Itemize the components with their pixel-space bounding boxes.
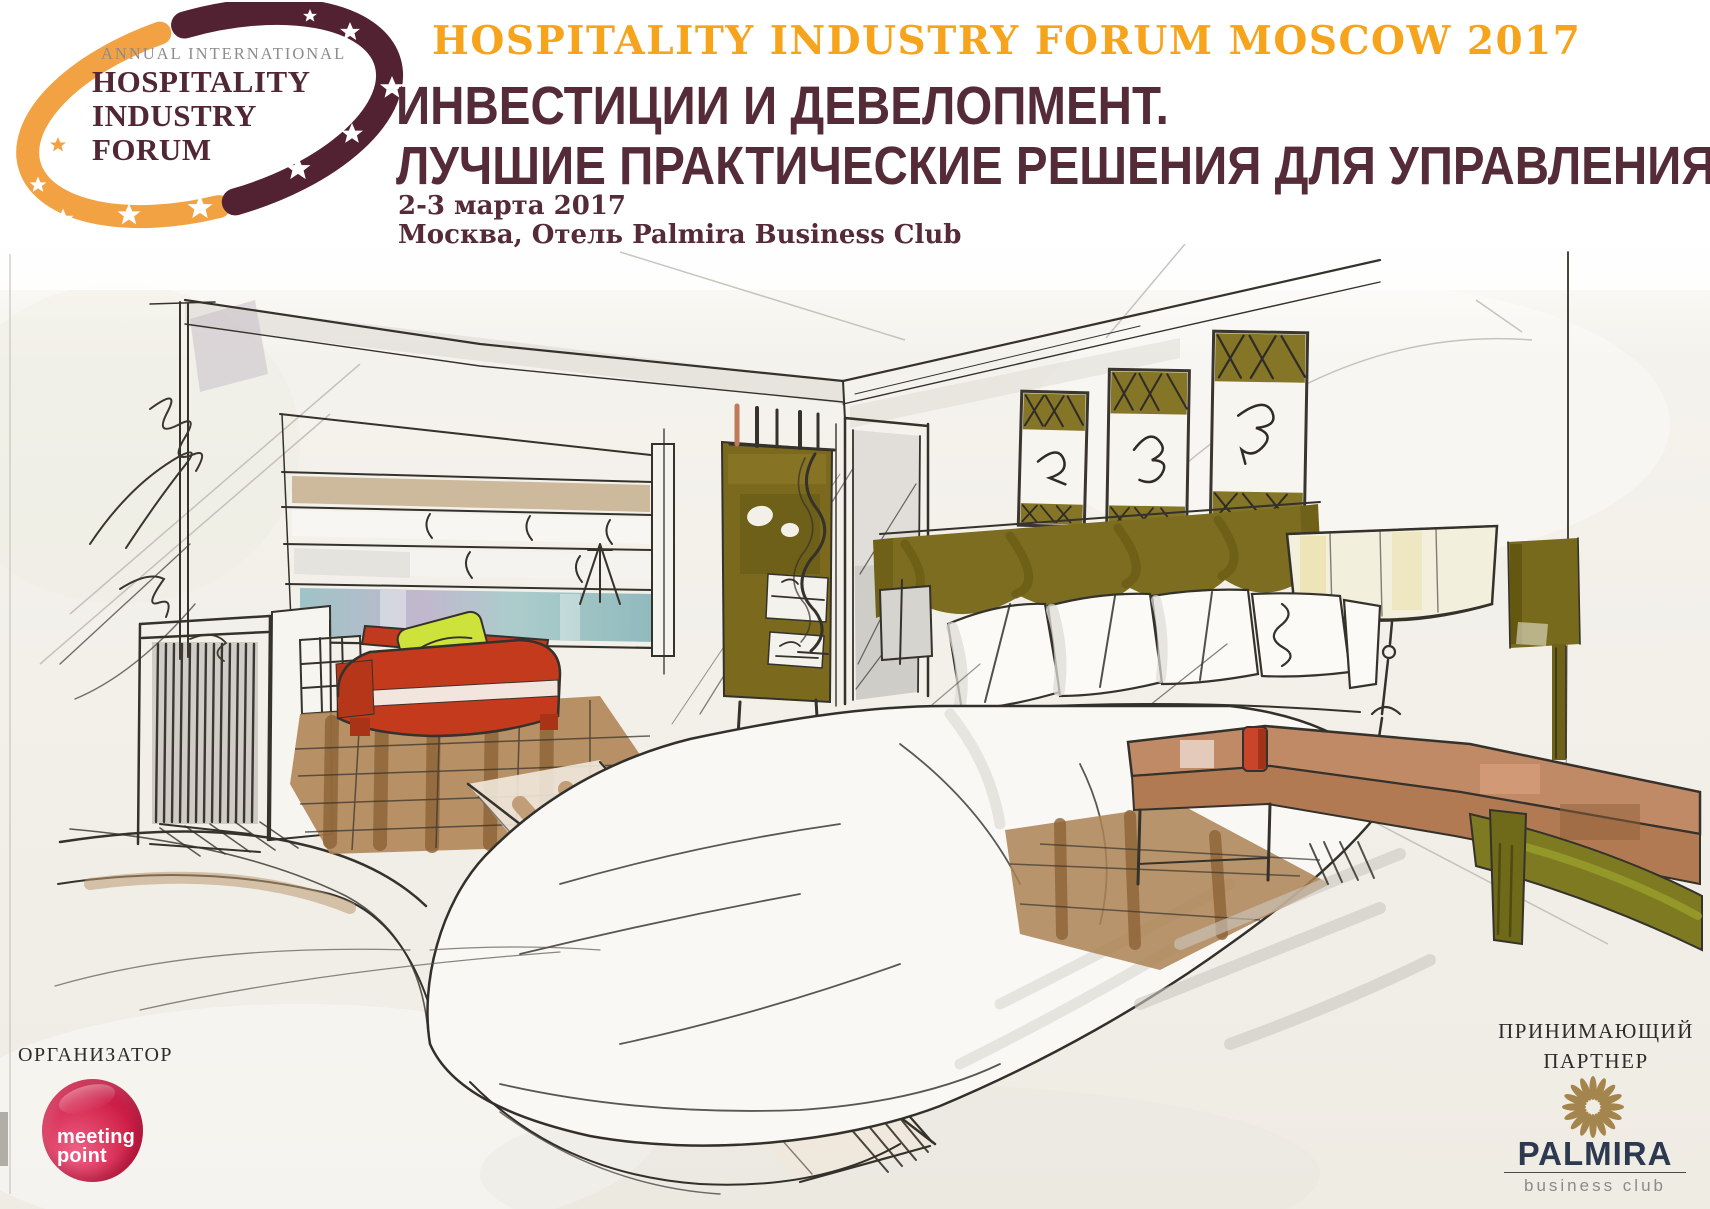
event-title: HOSPITALITY INDUSTRY FORUM MOSCOW 2017 bbox=[432, 21, 1581, 61]
palmira-wordmark: PALMIRA bbox=[1494, 1135, 1696, 1173]
paper-edge-mark bbox=[0, 1112, 8, 1166]
event-poster: { "event": { "title_en": "HOSPITALITY IN… bbox=[0, 0, 1710, 1209]
event-subtitle-line1: ИНВЕСТИЦИИ И ДЕВЕЛОПМЕНТ. bbox=[396, 80, 1169, 132]
palmira-sunburst-icon bbox=[1560, 1073, 1626, 1139]
palmira-tagline: business club bbox=[1494, 1176, 1696, 1196]
partner-label-line1: ПРИНИМАЮЩИЙ bbox=[1480, 1016, 1710, 1046]
logo-line1: HOSPITALITY bbox=[92, 64, 311, 99]
meeting-point-logo: meeting point bbox=[42, 1079, 143, 1182]
star-icon bbox=[50, 137, 66, 151]
palmira-divider bbox=[1504, 1172, 1686, 1173]
partner-label-line2: ПАРТНЕР bbox=[1480, 1046, 1710, 1076]
hotel-room-sketch-illustration bbox=[0, 244, 1710, 1209]
event-dates: 2-3 марта 2017 bbox=[398, 192, 626, 220]
logo-line3: FORUM bbox=[92, 132, 212, 167]
event-subtitle-line2: ЛУЧШИЕ ПРАКТИЧЕСКИЕ РЕШЕНИЯ ДЛЯ УПРАВЛЕН… bbox=[396, 140, 1710, 192]
forum-logo: ANNUAL INTERNATIONAL HOSPITALITY INDUSTR… bbox=[6, 2, 430, 240]
event-venue: Москва, Отель Palmira Business Club bbox=[398, 221, 961, 249]
logo-wordmark: ANNUAL INTERNATIONAL HOSPITALITY INDUSTR… bbox=[92, 44, 346, 167]
partner-label: ПРИНИМАЮЩИЙ ПАРТНЕР bbox=[1480, 1016, 1710, 1076]
meeting-point-wordmark: meeting point bbox=[57, 1128, 135, 1166]
meeting-point-line2: point bbox=[57, 1147, 135, 1166]
logo-tagline: ANNUAL INTERNATIONAL bbox=[101, 44, 346, 63]
organizer-label: ОРГАНИЗАТОР bbox=[18, 1044, 173, 1067]
logo-line2: INDUSTRY bbox=[92, 98, 257, 133]
